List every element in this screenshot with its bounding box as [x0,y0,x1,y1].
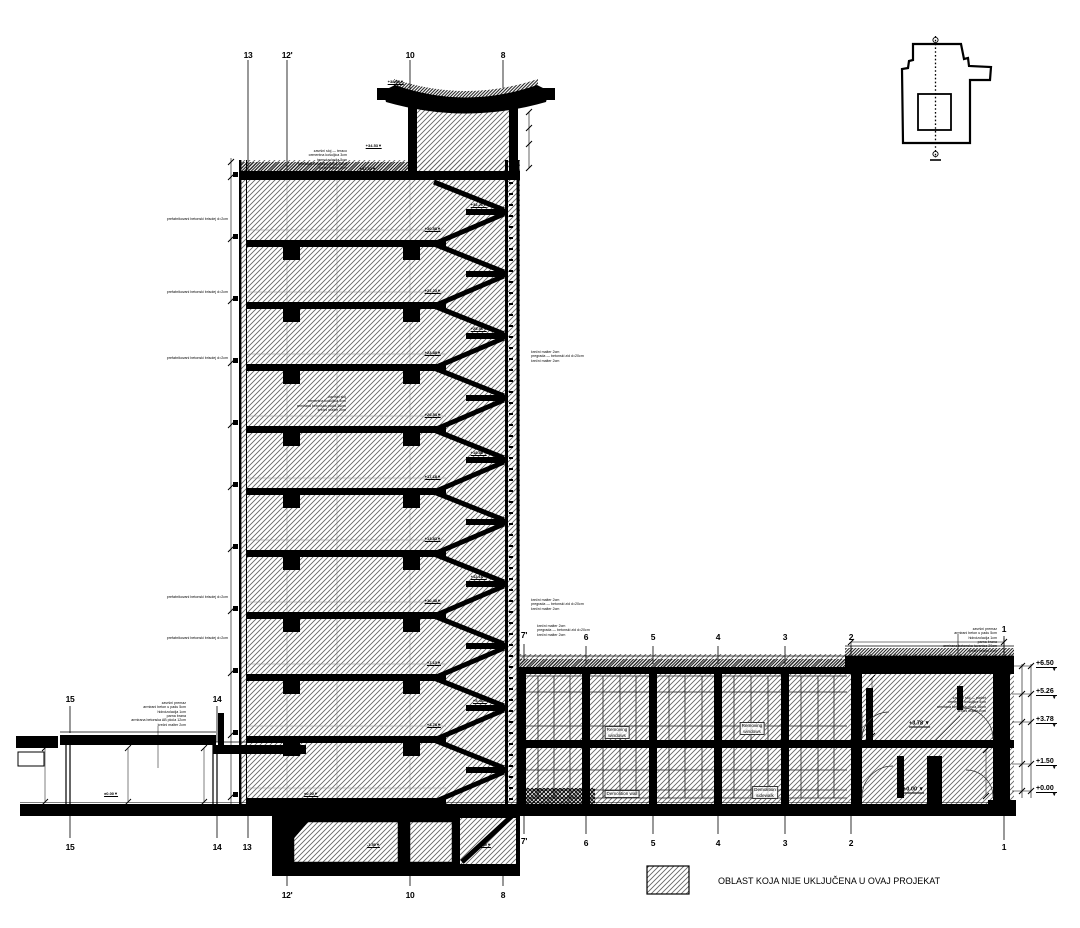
right-roof-slab [845,656,1014,670]
right-level-dims [1012,664,1031,798]
right-level-ticks [1019,663,1034,794]
floor-layers-callout: završni sloj — parketcementna košuljica … [937,696,986,713]
grid-label: 1 [1002,624,1006,634]
elevation-marker-small: +3.78 ▼ [909,721,930,728]
level-triangle-icon: ▼ [1036,766,1057,770]
grid-label: 14 [213,694,222,704]
elevation-marker-micro: +13.83▼ [425,536,441,542]
grid-label: 1 [1002,842,1006,852]
room-label: Removingwindows [740,722,765,735]
facade-note: prefabrikovani betonski brisolej d=2cm [167,595,228,599]
grid-label: 12' [282,890,293,900]
elevation-marker-micro: -1.50▼ [367,842,380,848]
grid-label: 7' [521,630,527,640]
low-mid-slab [520,740,1014,748]
grid-label: 15 [66,694,75,704]
grid-label: 8 [501,50,505,60]
grid-label: 10 [406,890,415,900]
elevation-marker-micro: +3.78▼ [427,722,441,728]
key-plan [902,36,991,160]
elevation-marker-micro: +34.53▼ [366,143,382,149]
grid-label: 5 [651,838,655,848]
wall-layers-callout-b: krečni malter 2cmpregrada — betonski zid… [531,598,584,611]
elevation-marker-micro: +7.13▼ [427,660,441,666]
tower-wall-right-outer [505,160,508,806]
elevation-marker: +0.00▼ [1036,785,1057,797]
elevation-marker-micro: +38.50▼ [388,79,404,85]
elevation-marker-micro: +17.18▼ [425,474,441,480]
grid-label: 13 [244,50,253,60]
elevation-marker-micro: +18.86▼ [471,450,487,456]
roof-tip-left [377,88,389,100]
grid-label: 4 [716,632,720,642]
facade-note: prefabrikovani betonski brisolej d=2cm [167,290,228,294]
grid-label: 3 [783,838,787,848]
elevation-marker-micro: +25.56▼ [471,326,487,332]
grid-label: 2 [849,838,853,848]
tower-roof-slab [383,85,549,114]
grid-label: 12' [282,50,293,60]
roof-tip-right [543,88,555,100]
architectural-section-sheet: { "legend": { "label": "OBLAST KOJA NIJE… [0,0,1080,928]
grid-label: 6 [584,838,588,848]
ground-slab [20,804,1016,816]
level-triangle-icon: ▼ [1036,696,1057,700]
top-slab [240,171,520,180]
grid-label: 2 [849,632,853,642]
elevation-marker-micro: ±0.00▼ [304,791,318,797]
grid-label: 13 [243,842,252,852]
tower-mid-layers-callout: završni slojcementna košuljica 3cmarmira… [297,395,346,412]
grid-label: 14 [213,842,222,852]
grid-label: 4 [716,838,720,848]
room-label: Demolitionsidewalk [752,786,778,799]
elevation-marker-micro: +27.23▼ [425,288,441,294]
elevation-marker-small: +0.00 ▼ [903,787,924,794]
room-label: Removingwindows [605,726,630,739]
tower-top-layers-callout: završni sloj — teracocementna košuljica … [298,149,347,171]
grid-label: 3 [783,632,787,642]
elevation-marker: +1.50▼ [1036,758,1057,770]
elevation-marker-micro: +20.53▼ [425,412,441,418]
elevation-marker: +5.26▼ [1036,688,1057,700]
elevation-marker-micro: +5.46▼ [473,698,487,704]
elevation-marker-micro: ±0.00▼ [104,791,118,797]
level-triangle-icon: ▼ [1036,724,1057,728]
grid-label: 7' [521,836,527,846]
roof-layers-callout: završni premazarmirani beton u padu 5cmh… [943,627,997,653]
grid-label: 10 [406,50,415,60]
wall-layers-callout-a: krečni malter 2cmpregrada — betonski zid… [531,350,584,363]
facade-note: prefabrikovani betonski brisolej d=2cm [167,217,228,221]
demolition-strip [521,788,595,804]
facade-note: prefabrikovani betonski brisolej d=2cm [167,356,228,360]
elevation-marker-micro: +30.58▼ [425,226,441,232]
elevation-marker-micro: +33.93▼ [410,171,426,177]
facade-note: prefabrikovani betonski brisolej d=2cm [167,636,228,640]
elevation-marker: +6.50▼ [1036,660,1057,672]
elevation-marker-micro: +12.16▼ [471,574,487,580]
wall-layers-callout-c: krečni malter 2cmpregrada — betonski zid… [537,624,590,637]
elevation-marker-micro: +23.88▼ [425,350,441,356]
level-triangle-icon: ▼ [1036,793,1057,797]
room-label: Demolition wall [605,790,640,798]
penthouse-hatch [417,108,509,172]
penthouse-wall-left [408,106,417,172]
elevation-marker-micro: +33.93▼ [360,166,376,172]
elevation-marker-micro: +10.48▼ [425,598,441,604]
legend-hatch-swatch [647,866,689,894]
elevation-marker: +3.78▼ [1036,716,1057,728]
grid-label: 8 [501,890,505,900]
level-triangle-icon: ▼ [1036,668,1057,672]
elevation-marker-micro: +32.26▼ [471,202,487,208]
canopy-layers-callout: završni premazarmirani beton u padu 5cmh… [131,701,186,727]
grid-label: 15 [66,842,75,852]
tower-wall-left-outer [239,160,241,806]
grid-label: 5 [651,632,655,642]
legend-label: OBLAST KOJA NIJE UKLJUČENA U OVAJ PROJEK… [718,876,940,886]
elevation-marker-micro: -1.50▼ [478,842,491,848]
